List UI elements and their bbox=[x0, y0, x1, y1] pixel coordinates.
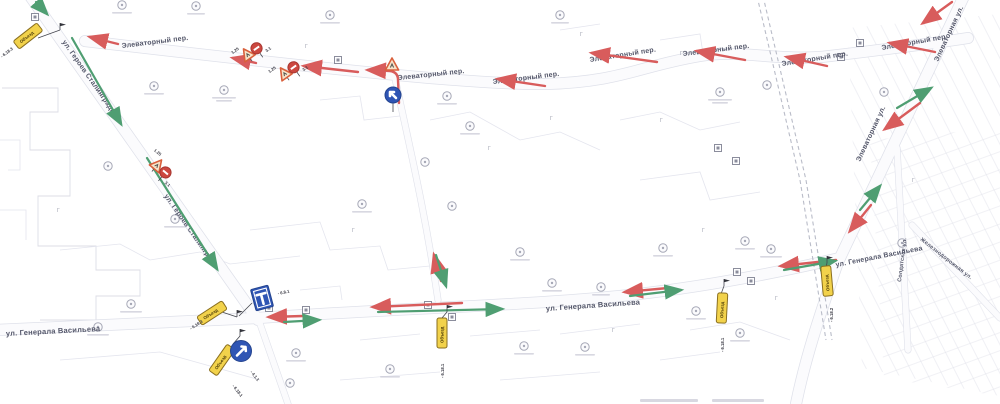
poi-circle bbox=[437, 92, 457, 105]
poi-circle bbox=[448, 202, 456, 210]
square-icon bbox=[857, 40, 864, 47]
corner-glyph: Г bbox=[488, 146, 491, 152]
flag-marker bbox=[240, 329, 246, 336]
poi-circle bbox=[763, 81, 771, 89]
poi-circle bbox=[708, 88, 732, 104]
bottom-caption-smudge bbox=[640, 399, 764, 402]
poi-circle bbox=[120, 300, 142, 313]
poi-circle bbox=[212, 86, 236, 102]
poi-circle bbox=[421, 158, 429, 166]
sign-cluster-top-2: 1.25 3.1 bbox=[267, 49, 310, 89]
sign-label: - 6.18.1 bbox=[720, 337, 725, 352]
corner-glyph: Г bbox=[352, 228, 355, 234]
sign-label: - 6.18.3 bbox=[0, 46, 14, 59]
sign-label: - 6.18.2 bbox=[829, 307, 834, 322]
poi-circle bbox=[686, 307, 706, 320]
poi-circle bbox=[760, 245, 782, 258]
poi-circle bbox=[460, 122, 480, 135]
open-arrow bbox=[147, 158, 217, 269]
sign-label: 3.1 bbox=[264, 45, 272, 53]
poi-circle bbox=[286, 349, 306, 362]
poi-circle bbox=[104, 162, 112, 170]
detour-plate-vasilyeva-3: Объезд bbox=[821, 266, 834, 297]
corner-glyph: Г bbox=[305, 44, 308, 50]
poi-circle bbox=[542, 279, 562, 292]
poi-circle bbox=[144, 82, 164, 95]
poi-circle bbox=[112, 1, 132, 14]
corner-glyph: Г bbox=[550, 116, 553, 122]
square-icon bbox=[335, 57, 342, 64]
poi-circle bbox=[286, 379, 294, 387]
open-arrow bbox=[72, 38, 121, 124]
corner-glyph: Г bbox=[580, 32, 583, 38]
detour-plate-vasilyeva-1: Объезд bbox=[437, 318, 447, 348]
square-icon bbox=[715, 145, 722, 152]
poi-circle bbox=[320, 11, 340, 24]
poi-circle bbox=[352, 200, 372, 213]
sign-label: - 4.1.1 bbox=[249, 370, 261, 383]
detour-plate-text: Объезд bbox=[440, 326, 445, 343]
map-svg: Г Г Г Г Г Г Г Г Г Г Г Г Элеваторный пер.… bbox=[0, 0, 1000, 404]
poi-circle bbox=[510, 248, 530, 261]
square-icon bbox=[32, 14, 39, 21]
corner-glyph: Г bbox=[912, 178, 915, 184]
corner-glyph: Г bbox=[612, 328, 615, 334]
detour-plate-text: Объезд bbox=[719, 301, 725, 318]
square-icon bbox=[734, 269, 741, 276]
sign-label: - 6.8.1 bbox=[277, 288, 290, 295]
sign-label: - 6.18.1 bbox=[231, 384, 244, 399]
corner-glyph: Г bbox=[775, 296, 778, 302]
poi-circle bbox=[653, 244, 673, 257]
corner-glyph: Г bbox=[57, 208, 60, 214]
poi-circle bbox=[514, 342, 534, 355]
detour-plate-vasilyeva-2: Объезд bbox=[716, 293, 728, 323]
poi-circle bbox=[735, 237, 755, 250]
detour-scheme-map: Г Г Г Г Г Г Г Г Г Г Г Г Элеваторный пер.… bbox=[0, 0, 1000, 404]
square-icon bbox=[449, 314, 456, 321]
poi-circle bbox=[187, 2, 205, 15]
street-label-stalingrada-1: ул. Героев Сталинграда bbox=[60, 39, 116, 115]
square-icon bbox=[303, 307, 310, 314]
sign-label: - 6.18.1 bbox=[440, 363, 445, 378]
direction-sign-group bbox=[231, 341, 252, 362]
poi-circle bbox=[730, 329, 750, 342]
poi-circle bbox=[575, 343, 595, 356]
square-icon bbox=[733, 158, 740, 165]
poi-circle bbox=[551, 11, 569, 24]
detour-plate-topleft: Объезд bbox=[13, 23, 43, 49]
closed-arrow bbox=[269, 316, 303, 317]
square-icon bbox=[748, 278, 755, 285]
flag-marker bbox=[60, 23, 66, 30]
corner-glyph: Г bbox=[702, 228, 705, 234]
corner-glyph: Г bbox=[660, 118, 663, 124]
sign-label: 1.25 bbox=[153, 148, 163, 158]
poi-circle bbox=[880, 88, 888, 96]
